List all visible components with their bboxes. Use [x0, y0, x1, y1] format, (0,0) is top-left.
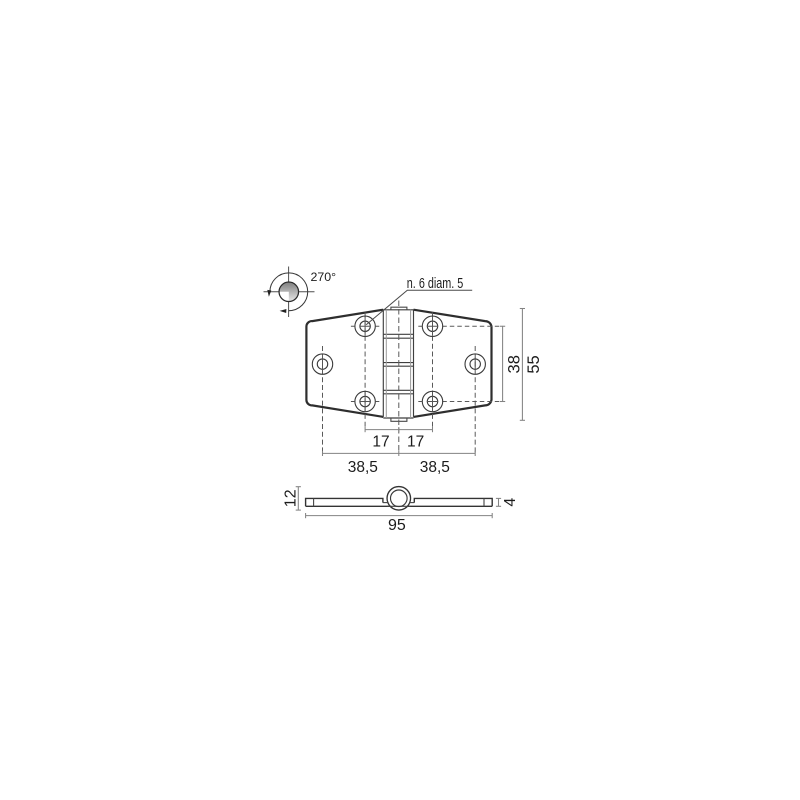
svg-text:95: 95	[388, 517, 406, 534]
svg-text:270°: 270°	[311, 270, 337, 284]
svg-text:17: 17	[372, 433, 389, 450]
svg-text:38,5: 38,5	[420, 459, 450, 476]
svg-text:17: 17	[407, 433, 424, 450]
svg-text:55: 55	[525, 355, 543, 373]
svg-text:38,5: 38,5	[348, 459, 378, 476]
svg-text:n. 6 diam. 5: n. 6 diam. 5	[407, 276, 464, 292]
svg-text:12: 12	[282, 489, 299, 507]
svg-text:4: 4	[502, 498, 519, 507]
svg-text:38: 38	[505, 355, 523, 373]
